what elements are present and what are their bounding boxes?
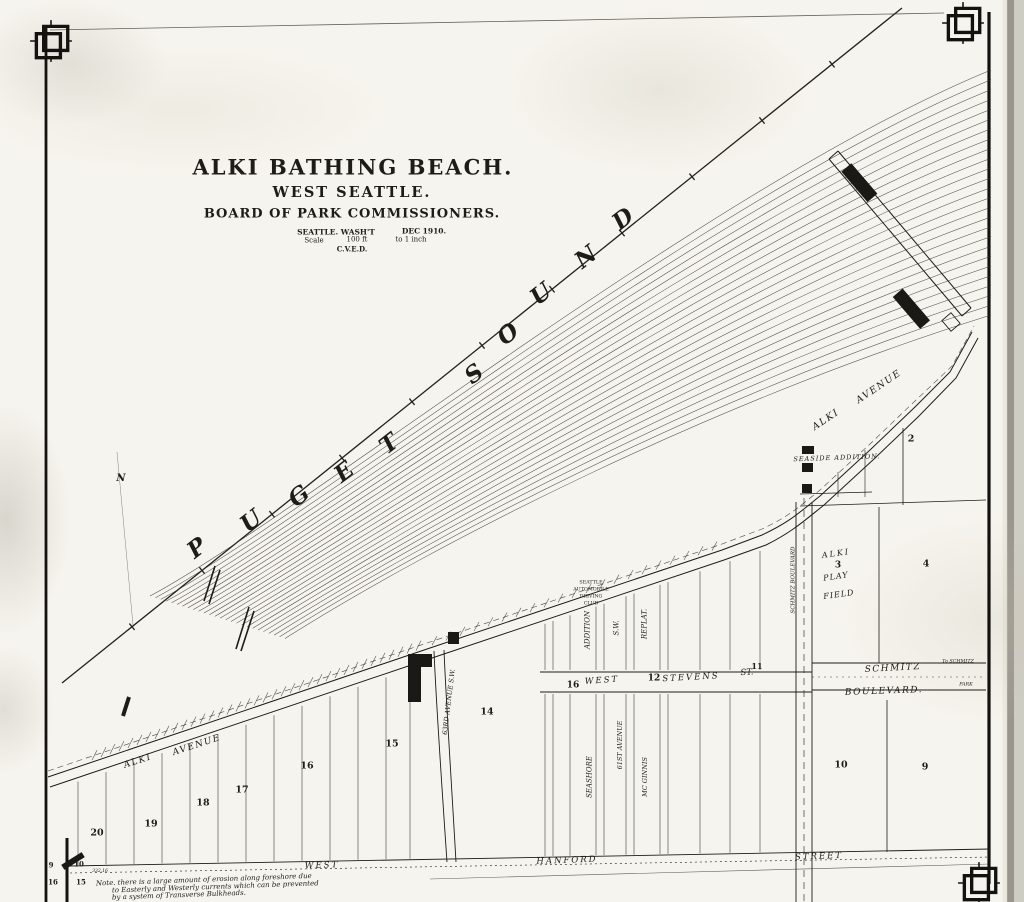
plat-sw: S.W. xyxy=(614,621,621,636)
block-9: 9 xyxy=(922,762,929,772)
street-schmitz-boulevard-vertical: SCHMITZ BOULEVARD xyxy=(791,547,797,614)
scale-unit: to 1 inch xyxy=(395,237,426,244)
initials: C.V.E.D. xyxy=(337,246,368,253)
map-date: DEC 1910. xyxy=(402,227,446,235)
seattle-automobile-driving-club-4: CLUB xyxy=(584,603,598,608)
to-schmitz-2: PARK xyxy=(959,684,972,689)
block-4: 4 xyxy=(923,559,930,569)
block-12: 12 xyxy=(648,675,661,684)
seattle-automobile-driving-club-2: AUTOMOBILE xyxy=(573,589,609,594)
pier-base-structure xyxy=(942,313,960,331)
map-organization: BOARD OF PARK COMMISSIONERS. xyxy=(204,208,500,221)
corner-ornament-top-left xyxy=(30,20,72,62)
corner-ornament-top-right xyxy=(942,2,984,44)
plat-replat: REPLAT. xyxy=(642,609,649,639)
corner-ornament-bottom-right xyxy=(958,862,1000,902)
plat-addition: ADDITION xyxy=(585,611,592,649)
block-14: 14 xyxy=(480,707,493,717)
building-63rd-ave xyxy=(448,632,459,644)
outer-harbor-line xyxy=(62,8,902,683)
section-corner-10: 10 xyxy=(74,861,84,868)
block-2: 2 xyxy=(908,434,915,444)
street-west-hanford-1: WEST xyxy=(305,861,340,871)
street-west-hanford-2: HANFORD xyxy=(536,856,597,867)
block-15: 15 xyxy=(385,739,398,749)
buildings xyxy=(61,446,814,870)
pier xyxy=(829,151,971,331)
north-mark: N xyxy=(116,474,125,484)
block-10: 10 xyxy=(834,760,847,770)
seattle-automobile-driving-club-1: SEATTLE xyxy=(579,582,602,587)
plat-mc-ginnis: MC GINNIS xyxy=(642,757,649,797)
corner-ornaments xyxy=(30,2,1000,902)
building-seaside-3 xyxy=(802,484,812,493)
block-17: 17 xyxy=(235,785,248,795)
block-3: 3 xyxy=(835,562,841,571)
street-lines xyxy=(70,428,990,902)
bath-house-building xyxy=(408,654,432,702)
block-19: 19 xyxy=(144,819,157,829)
map-subtitle: WEST SEATTLE. xyxy=(273,186,432,201)
block-16-stevens: 16 xyxy=(567,682,580,691)
seattle-automobile-driving-club-3: DRIVING xyxy=(580,596,603,601)
block-16: 16 xyxy=(300,761,313,771)
pier-building-outer xyxy=(841,163,877,202)
building-seaside-1 xyxy=(802,446,814,454)
to-schmitz-1: To SCHMITZ xyxy=(942,661,974,666)
dimension-332-16: 332.16 xyxy=(92,870,108,875)
street-west-hanford-3: STREET xyxy=(795,852,843,862)
section-corner-9: 9 xyxy=(49,862,54,869)
map-title: ALKI BATHING BEACH. xyxy=(193,157,514,178)
street-61st-avenue: 61ST AVENUE xyxy=(617,721,624,770)
block-20: 20 xyxy=(90,828,103,838)
street-west-stevens-1: WEST xyxy=(585,676,620,687)
block-18: 18 xyxy=(196,798,209,808)
block-11: 11 xyxy=(751,662,762,670)
section-corner-15: 15 xyxy=(76,879,86,886)
map-sheet: ALKI BATHING BEACH.WEST SEATTLE.BOARD OF… xyxy=(0,0,1024,902)
map-drawing xyxy=(0,0,1024,902)
scale-label: Scale xyxy=(304,238,323,245)
street-seashore: SEASHORE xyxy=(587,756,594,798)
scale-value: 100 ft xyxy=(347,237,368,244)
building-seaside-2 xyxy=(802,463,813,472)
section-corner-16: 16 xyxy=(48,879,58,886)
